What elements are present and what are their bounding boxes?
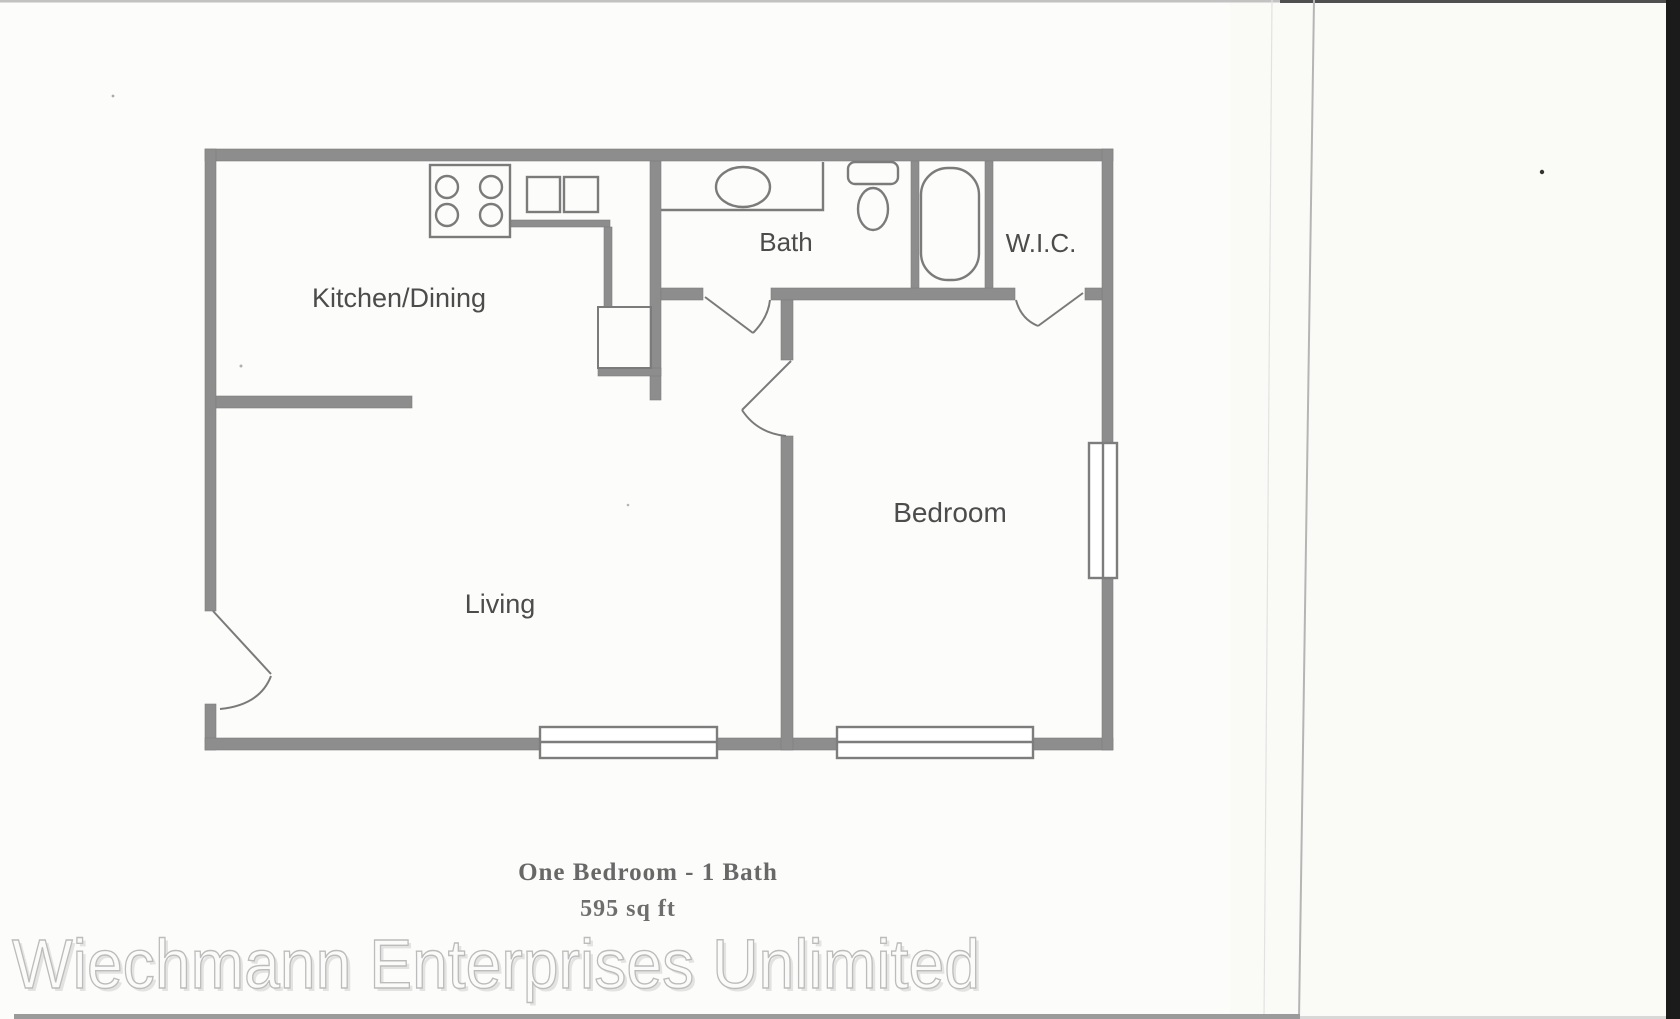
room-label-bedroom: Bedroom	[893, 497, 1007, 528]
wall-bottom-right	[1033, 738, 1113, 750]
wall-bottom-left	[205, 738, 540, 750]
caption-area: 595 sq ft	[580, 896, 676, 922]
room-label-living: Living	[465, 589, 536, 619]
wall-kitchen-peninsula	[216, 396, 412, 408]
bedroom-window-right	[1089, 443, 1117, 578]
scan-top-line-dark	[1280, 0, 1666, 3]
room-label-wic: W.I.C.	[1006, 228, 1077, 258]
wall-bottom-middle	[717, 738, 837, 750]
watermark-text: Wiechmann Enterprises Unlimited	[12, 925, 980, 1003]
wall-top	[205, 149, 1113, 161]
scan-right-edge	[1666, 0, 1680, 1019]
wall-living-bedroom	[781, 436, 793, 750]
wall-tub-left	[911, 161, 919, 288]
living-window	[540, 727, 717, 758]
watermark: Wiechmann Enterprises Unlimited Wiechman…	[12, 925, 983, 1006]
wall-bath-door-left-jamb	[661, 288, 703, 300]
wall-bath-bottom	[771, 288, 1015, 300]
wall-right-upper	[1102, 149, 1113, 443]
scan-speck	[112, 95, 115, 98]
caption-title: One Bedroom - 1 Bath	[518, 859, 778, 886]
room-label-kitchen-dining: Kitchen/Dining	[312, 283, 486, 313]
pantry-bottom-wall	[598, 368, 661, 376]
paper-right-band	[1230, 0, 1680, 1019]
bedroom-window-bottom	[837, 727, 1033, 758]
wall-bedroom-door-upper	[781, 300, 793, 360]
wall-right-lower	[1102, 578, 1113, 750]
wall-wic-door-right-jamb	[1085, 288, 1102, 300]
scan-speck	[240, 365, 243, 368]
counter-return	[604, 227, 612, 307]
counter-edge	[510, 220, 610, 227]
scan-bottom-line	[14, 1014, 1300, 1019]
floor-plan-scan: Kitchen/Dining Bath W.I.C. Bedroom Livin…	[0, 0, 1680, 1019]
wall-tub-right	[985, 161, 993, 288]
room-label-bath: Bath	[759, 227, 813, 257]
scan-speck	[627, 504, 630, 507]
scanned-page: Kitchen/Dining Bath W.I.C. Bedroom Livin…	[0, 0, 1680, 1019]
scan-speck	[1540, 170, 1544, 174]
wall-left-upper	[205, 149, 216, 611]
